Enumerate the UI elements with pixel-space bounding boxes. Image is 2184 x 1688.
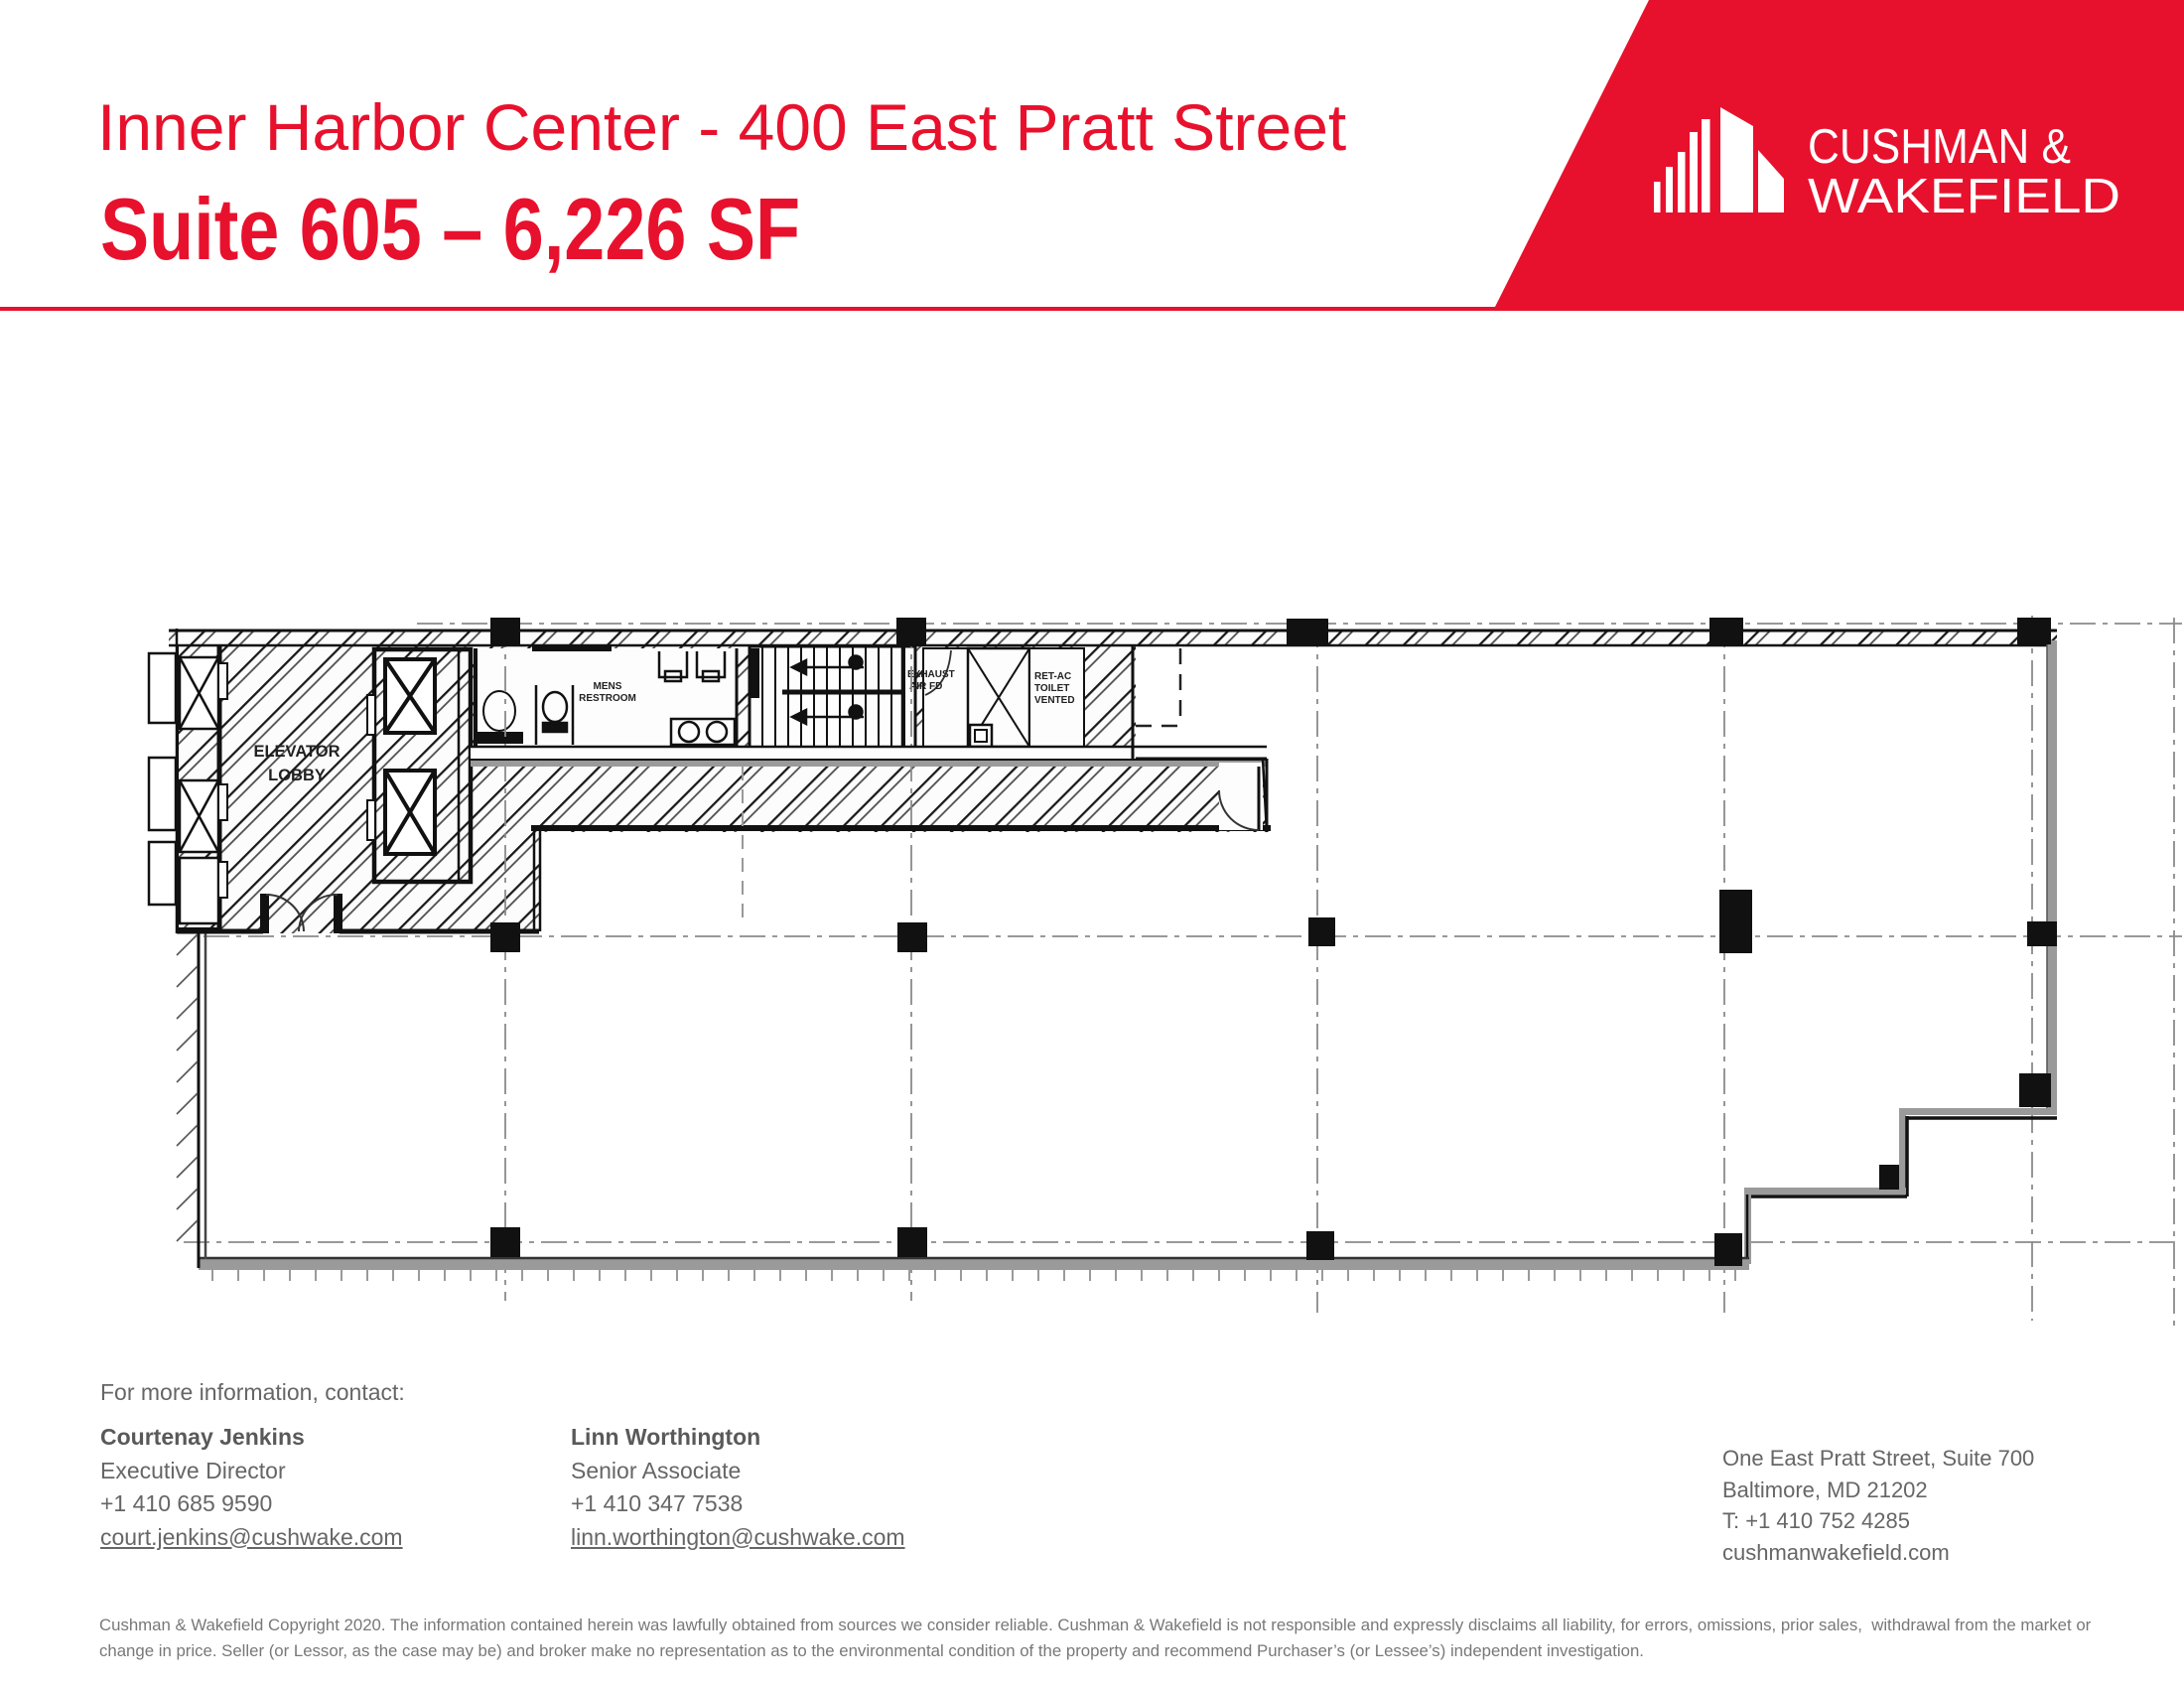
- svg-text:TOILET: TOILET: [1034, 683, 1069, 694]
- svg-text:EXHAUST: EXHAUST: [907, 669, 955, 680]
- svg-text:MENS: MENS: [594, 681, 622, 692]
- svg-text:AIR FD: AIR FD: [909, 681, 942, 692]
- svg-text:VENTED: VENTED: [1034, 695, 1075, 706]
- svg-text:RET-AC: RET-AC: [1034, 671, 1071, 682]
- svg-text:ELEVATOR: ELEVATOR: [253, 743, 340, 761]
- svg-text:LOBBY: LOBBY: [268, 767, 326, 784]
- svg-text:RESTROOM: RESTROOM: [579, 693, 636, 704]
